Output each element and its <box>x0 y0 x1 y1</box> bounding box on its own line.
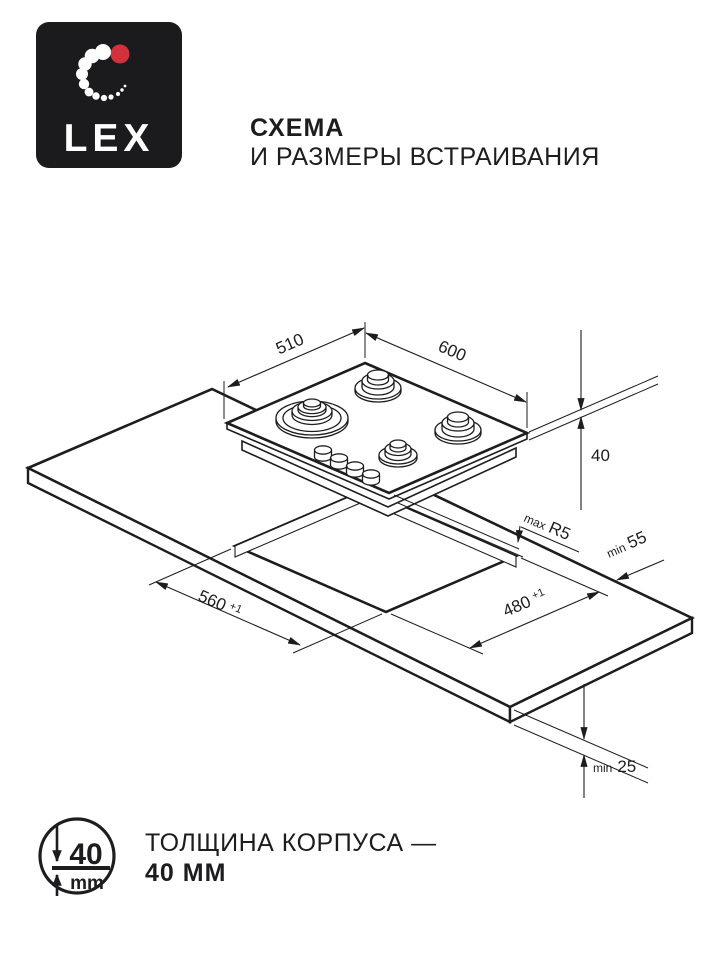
dim-560-label: 560+1 <box>195 586 244 621</box>
installation-diagram: 510 600 40 maxR5 min55 560+1 480+1 <box>0 0 720 960</box>
thickness-icon-value: 40 <box>69 838 102 871</box>
thickness-note: ТОЛЩИНА КОРПУСА — 40 ММ <box>145 828 437 888</box>
dim-40: 40 <box>529 330 658 510</box>
dim-min-55-label: min55 <box>603 527 649 561</box>
thickness-note-line-1: ТОЛЩИНА КОРПУСА — <box>145 828 437 858</box>
thickness-icon-unit: mm <box>70 873 104 894</box>
dim-510-label: 510 <box>273 330 307 359</box>
dim-600-label: 600 <box>435 337 469 366</box>
dim-40-label: 40 <box>591 446 610 465</box>
thickness-note-line-2: 40 ММ <box>145 858 437 888</box>
thickness-icon: 40 mm <box>40 819 114 896</box>
dim-min-55: min55 <box>603 527 664 580</box>
dim-min-25-label: min25 <box>593 757 636 776</box>
